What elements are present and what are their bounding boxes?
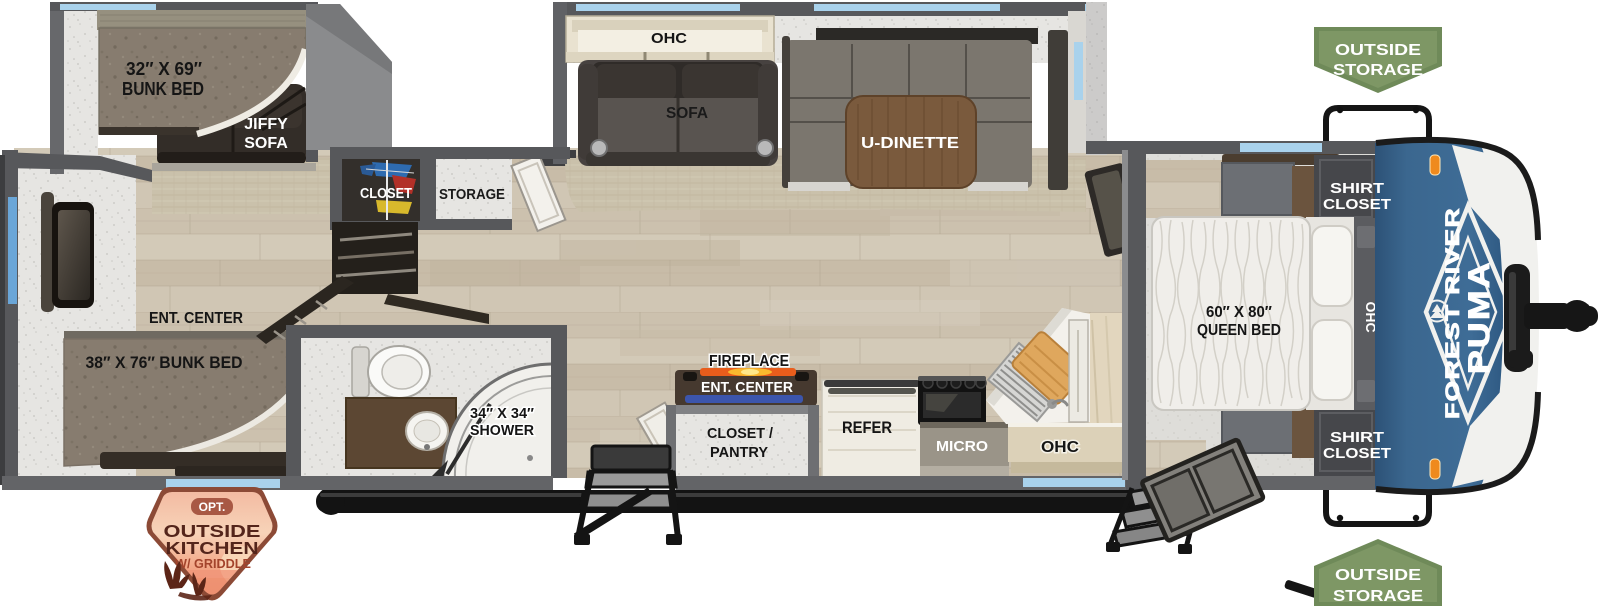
svg-text:OHC: OHC [1041, 439, 1079, 456]
svg-text:REFER: REFER [842, 419, 892, 437]
svg-text:CLOSET: CLOSET [1323, 197, 1391, 213]
svg-text:ENT. CENTER: ENT. CENTER [149, 310, 243, 327]
svg-text:SOFA: SOFA [244, 135, 288, 152]
svg-text:SHIRT: SHIRT [1330, 181, 1384, 197]
svg-text:STORAGE: STORAGE [439, 187, 505, 203]
svg-text:FOREST RIVER: FOREST RIVER [1442, 207, 1464, 419]
svg-text:MICRO: MICRO [936, 438, 988, 455]
svg-text:W/ GRIDDLE: W/ GRIDDLE [175, 557, 251, 571]
svg-text:CLOSET /: CLOSET / [707, 425, 774, 442]
svg-text:QUEEN BED: QUEEN BED [1197, 322, 1281, 339]
svg-text:BUNK BED: BUNK BED [122, 79, 204, 99]
svg-text:CLOSET: CLOSET [1323, 446, 1391, 462]
svg-text:FIREPLACE: FIREPLACE [709, 353, 789, 370]
svg-text:OUTSIDE: OUTSIDE [1335, 567, 1421, 584]
svg-text:SHOWER: SHOWER [470, 423, 535, 439]
svg-text:32″ X 69″: 32″ X 69″ [126, 59, 202, 79]
svg-text:SOFA: SOFA [666, 105, 708, 122]
svg-text:ENT. CENTER: ENT. CENTER [701, 379, 793, 396]
svg-text:OHC: OHC [651, 30, 687, 47]
svg-text:CLOSET: CLOSET [360, 186, 412, 202]
svg-text:SHIRT: SHIRT [1330, 430, 1384, 446]
svg-text:PUMA: PUMA [1463, 260, 1496, 374]
svg-text:JIFFY: JIFFY [244, 116, 288, 133]
svg-text:60″ X 80″: 60″ X 80″ [1206, 304, 1273, 321]
svg-text:OPT.: OPT. [199, 500, 226, 514]
svg-text:STORAGE: STORAGE [1333, 62, 1423, 79]
svg-text:OUTSIDE: OUTSIDE [1335, 42, 1421, 59]
svg-text:PANTRY: PANTRY [710, 444, 768, 461]
svg-text:KITCHEN: KITCHEN [166, 538, 259, 558]
svg-text:38″ X 76″ BUNK BED: 38″ X 76″ BUNK BED [86, 354, 243, 372]
svg-text:STORAGE: STORAGE [1333, 588, 1423, 605]
svg-text:34″ X 34″: 34″ X 34″ [470, 406, 534, 422]
svg-text:U-DINETTE: U-DINETTE [861, 135, 959, 152]
